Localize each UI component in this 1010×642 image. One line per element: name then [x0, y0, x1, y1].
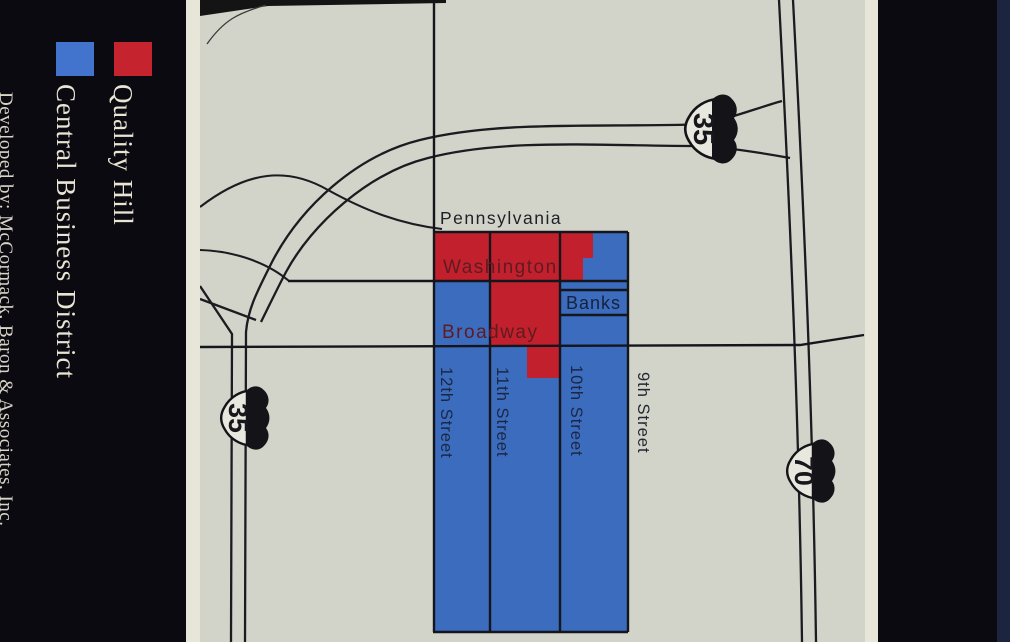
city-map: 35 35 70 Pennsylvania Washington Broadwa…: [200, 0, 878, 642]
legend-band: Quality Hill Central Business District D…: [0, 0, 186, 642]
developer-credit: Developed by: McCormack, Baron & Associa…: [0, 92, 16, 526]
street-label-broadway: Broadway: [442, 322, 539, 343]
legend-label-quality-hill: Quality Hill: [107, 84, 138, 226]
film-edge-strip: [997, 0, 1010, 642]
street-label-banks: Banks: [566, 293, 621, 313]
street-label-9th: 9th Street: [634, 372, 652, 454]
city-block-quality-hill: [527, 346, 560, 378]
legend-swatch-cbd: [56, 42, 94, 76]
title-band: The New Quality Hill: [878, 0, 1010, 642]
slide-photo: 35 35 70 Pennsylvania Washington Broadwa…: [0, 0, 1010, 642]
shield-number: 70: [789, 456, 819, 486]
legend-label-cbd: Central Business District: [50, 84, 81, 379]
slide-edge: [186, 0, 200, 642]
shield-number: 35: [223, 403, 253, 433]
street-label-washington: Washington: [443, 257, 558, 278]
slide-edge: [865, 0, 879, 642]
city-blocks: [433, 232, 628, 632]
street-label-10th: 10th Street: [567, 365, 585, 457]
street-label-12th: 12th Street: [437, 367, 455, 459]
legend-swatch-quality-hill: [114, 42, 152, 76]
street-label-11th: 11th Street: [493, 367, 511, 458]
shield-number: 35: [687, 113, 719, 145]
street-label-pennsylvania: Pennsylvania: [440, 208, 562, 228]
